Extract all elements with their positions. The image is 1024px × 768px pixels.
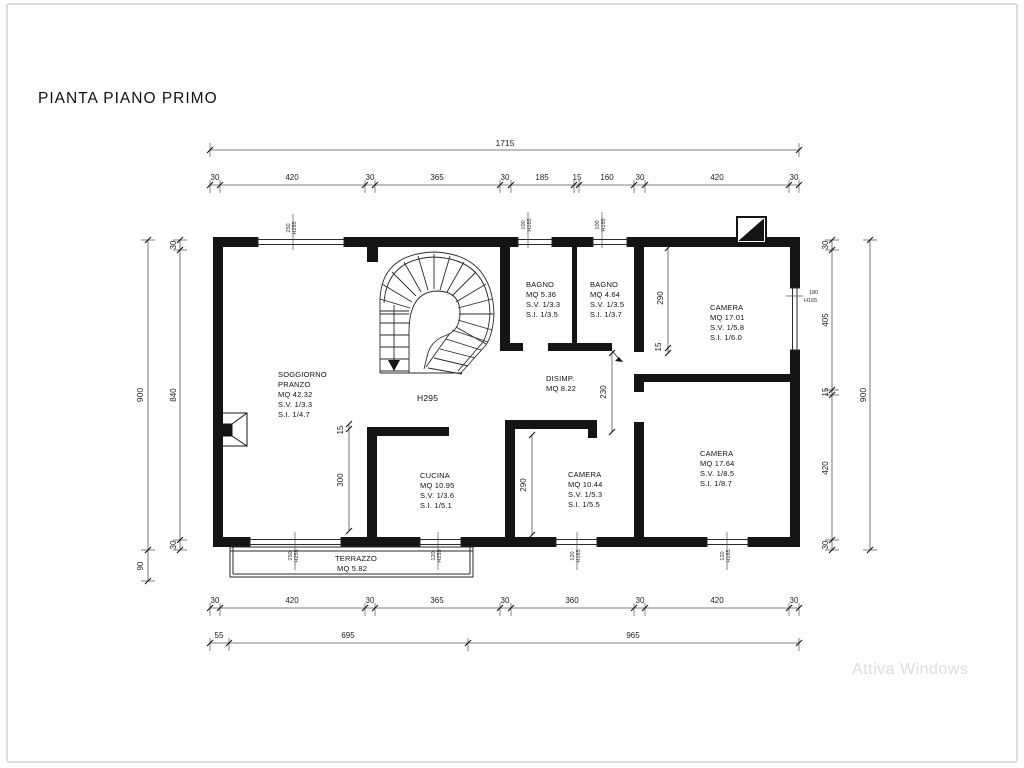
- room-label-camera2: S.I. 1/5.5: [568, 500, 600, 509]
- dim-label: 160: [600, 173, 614, 182]
- dim-label: 15: [336, 425, 345, 434]
- dim-label: 965: [626, 631, 640, 640]
- dim-label: 900: [858, 388, 868, 402]
- room-label-bagno1: BAGNO: [526, 280, 554, 289]
- room-label-camera1: S.I. 1/6.0: [710, 333, 742, 342]
- dim-label: 230: [599, 385, 608, 399]
- dim-label: 290: [519, 478, 528, 492]
- dim-label: 30: [790, 173, 799, 182]
- room-label-camera1: S.V. 1/5.8: [710, 323, 744, 332]
- dim-label: 300: [336, 473, 345, 487]
- dim-label: 420: [710, 173, 724, 182]
- room-label-camera1: CAMERA: [710, 303, 743, 312]
- fireplace-symbol: [221, 413, 247, 446]
- dim-label: 30: [821, 240, 830, 249]
- dim-label: 30: [636, 596, 645, 605]
- window-tag-height: H165: [601, 218, 607, 231]
- window-glazing: [250, 237, 800, 547]
- room-label-soggiorno: S.I. 1/4.7: [278, 410, 310, 419]
- room-label-camera3: CAMERA: [700, 449, 733, 458]
- dim-label: 420: [710, 596, 724, 605]
- room-label-soggiorno: S.V. 1/3.3: [278, 400, 312, 409]
- activate-windows-watermark: Attiva Windows: [852, 661, 968, 678]
- dim-label: 695: [341, 631, 355, 640]
- dim-label: 420: [821, 461, 830, 475]
- room-label-camera2: S.V. 1/5.3: [568, 490, 602, 499]
- dim-label: 30: [821, 540, 830, 549]
- floor-plan-page: PIANTA PIANO PRIMO: [0, 0, 1024, 768]
- room-label-soggiorno: MQ 42.32: [278, 390, 313, 399]
- stair-down-arrow: [388, 360, 400, 371]
- room-label-camera3: MQ 17.64: [700, 459, 735, 468]
- room-label-bagno1: S.V. 1/3.3: [526, 300, 560, 309]
- stair-height-label: H295: [417, 393, 438, 403]
- dim-label: 30: [211, 596, 220, 605]
- room-label-camera3: S.I. 1/8.7: [700, 479, 732, 488]
- page-title: PIANTA PIANO PRIMO: [38, 90, 218, 107]
- window-tag-height: H255: [292, 221, 298, 234]
- dim-label: 30: [211, 173, 220, 182]
- room-label-bagno2: S.V. 1/3.5: [590, 300, 624, 309]
- dim-label: 15: [821, 387, 830, 396]
- room-label-bagno2: S.I. 1/3.7: [590, 310, 622, 319]
- window-tag-height: H255: [294, 549, 300, 562]
- dim-label: 30: [169, 240, 178, 249]
- dim-label: 30: [636, 173, 645, 182]
- page-border: [7, 4, 1017, 762]
- dim-label: 30: [366, 173, 375, 182]
- stairs: [380, 252, 494, 374]
- window-tag-height: H165: [726, 549, 732, 562]
- room-label-disimp: DISIMP.: [546, 374, 574, 383]
- flue-symbol: [737, 217, 766, 243]
- door-swing-mark: [612, 351, 623, 362]
- dim-label: 365: [430, 596, 444, 605]
- dim-label: 290: [656, 291, 665, 305]
- dim-label: 420: [285, 173, 299, 182]
- dim-label: 30: [169, 540, 178, 549]
- room-label-bagno1: MQ 5.36: [526, 290, 556, 299]
- room-label-camera2: MQ 10.44: [568, 480, 603, 489]
- dim-label: 30: [501, 173, 510, 182]
- dim-label: 900: [135, 388, 145, 402]
- dim-label: 15: [573, 173, 582, 182]
- room-label-terrazzo: MQ 5.82: [337, 564, 367, 573]
- window-tag-width: 180: [809, 290, 818, 296]
- room-label-disimp: MQ 8.22: [546, 384, 576, 393]
- room-label-camera2: CAMERA: [568, 470, 601, 479]
- dim-label: 90: [136, 561, 145, 570]
- dim-label: 360: [565, 596, 579, 605]
- dim-label: 30: [790, 596, 799, 605]
- dim-label: 840: [169, 388, 178, 402]
- room-label-bagno1: S.I. 1/3.5: [526, 310, 558, 319]
- room-label-cucina: CUCINA: [420, 471, 450, 480]
- room-label-cucina: S.V. 1/3.6: [420, 491, 454, 500]
- window-tag-height: H165: [804, 298, 817, 304]
- dim-label: 420: [285, 596, 299, 605]
- window-tag-height: H255: [437, 549, 443, 562]
- room-label-camera1: MQ 17.01: [710, 313, 745, 322]
- room-label-bagno2: MQ 4.64: [590, 290, 620, 299]
- dim-label: 55: [215, 631, 224, 640]
- window-tag-height: H165: [576, 549, 582, 562]
- room-label-camera3: S.V. 1/8.5: [700, 469, 734, 478]
- window-tag-height: H165: [527, 218, 533, 231]
- room-label-terrazzo: TERRAZZO: [335, 554, 377, 563]
- room-label-bagno2: BAGNO: [590, 280, 618, 289]
- dim-top-total: 1715: [496, 138, 515, 148]
- dim-label: 365: [430, 173, 444, 182]
- room-label-cucina: MQ 10.95: [420, 481, 455, 490]
- dim-label: 30: [366, 596, 375, 605]
- dimension-labels: 1715 30 420 30 365 30 185 15 160 30 420 …: [135, 138, 868, 640]
- dim-label: 30: [501, 596, 510, 605]
- room-label-soggiorno: SOGGIORNO: [278, 370, 327, 379]
- dim-label: 185: [535, 173, 549, 182]
- dim-label: 15: [654, 342, 663, 351]
- dim-label: 405: [821, 313, 830, 327]
- room-label-soggiorno: PRANZO: [278, 380, 310, 389]
- room-label-cucina: S.I. 1/5.1: [420, 501, 452, 510]
